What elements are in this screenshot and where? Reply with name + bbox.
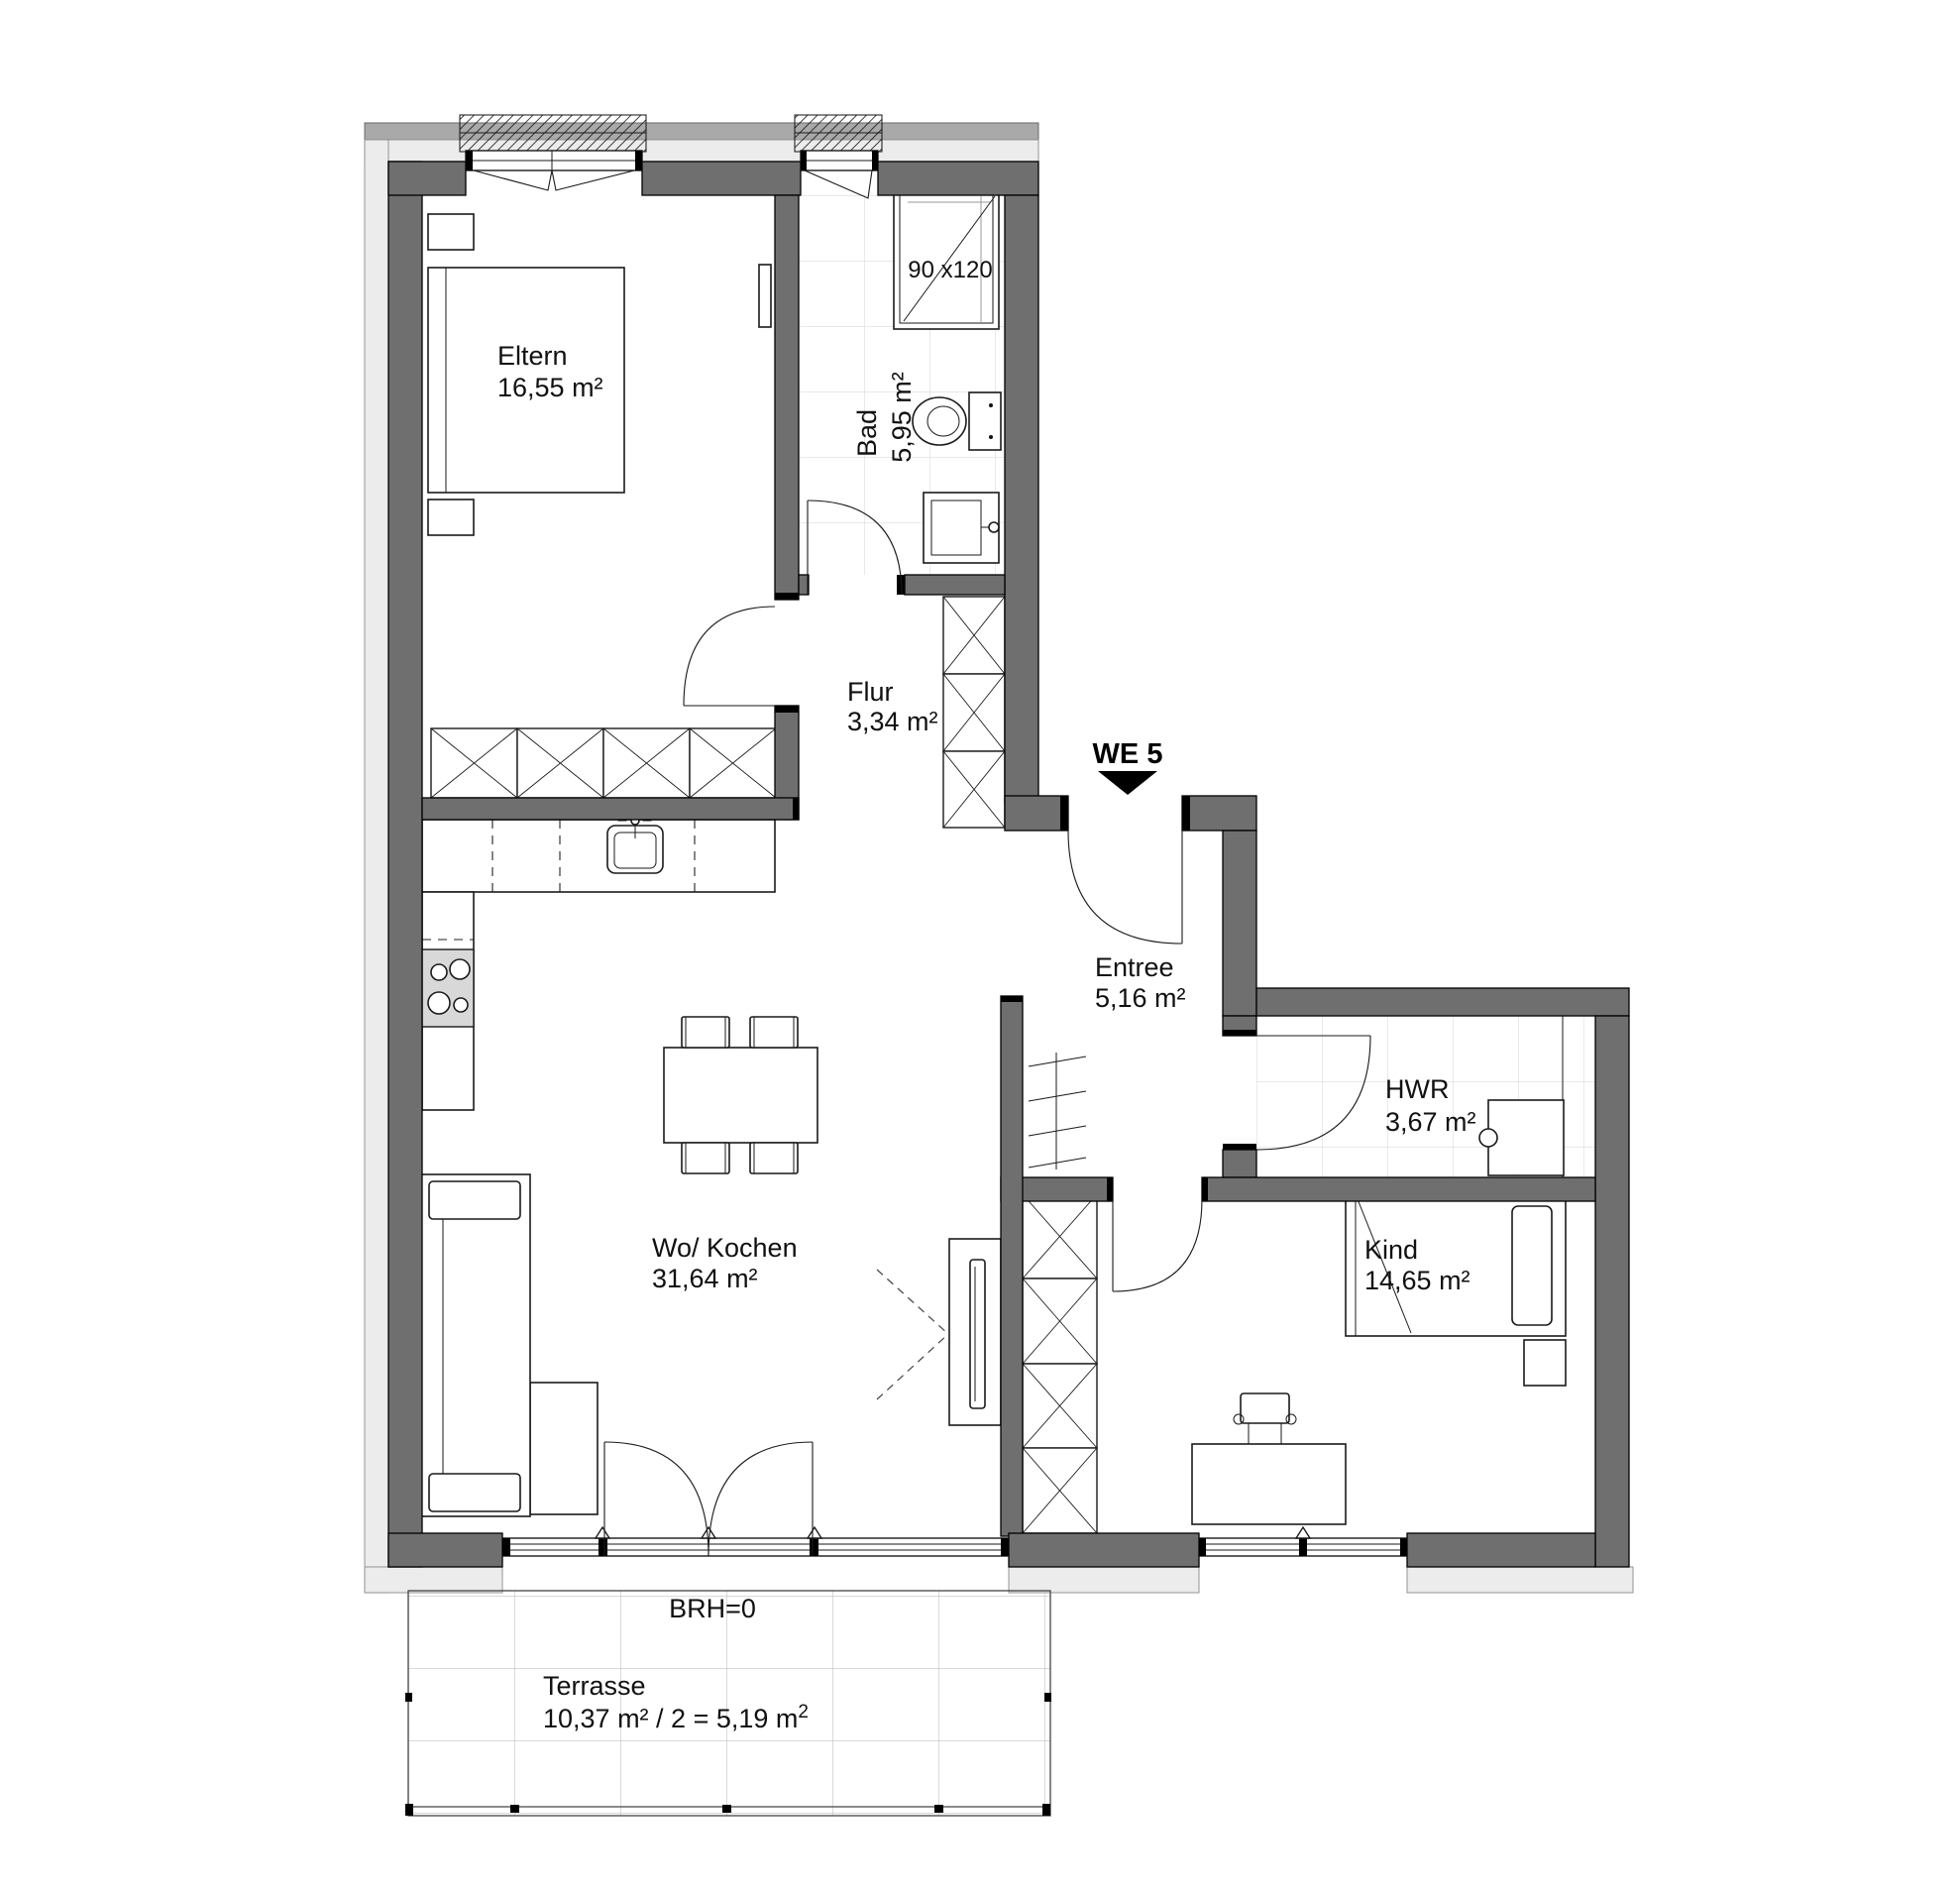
nightstand-bottom (428, 500, 474, 535)
apartment-entry-door-swing (1068, 831, 1182, 944)
wohnen-area: 31,64 m² (652, 1264, 758, 1293)
kind-door-swing (1113, 1199, 1202, 1291)
sofa (419, 1174, 598, 1516)
tv-sideboard (877, 1239, 1001, 1425)
desk (1192, 1444, 1346, 1524)
coat-rack (1029, 1053, 1086, 1169)
kind-area: 14,65 m² (1364, 1266, 1470, 1295)
bad-label: Bad (852, 409, 882, 457)
wohnen-label: Wo/ Kochen (652, 1233, 798, 1263)
floorplan-canvas: Eltern 16,55 m² Bad 5,95 m² Flur 3,34 m²… (0, 0, 1960, 1891)
dining-table (664, 1048, 817, 1143)
cooktop (422, 949, 474, 1027)
bad-window (795, 115, 882, 198)
tiled-floors (799, 195, 1595, 1177)
flur-wardrobe (943, 597, 1005, 828)
bad-area: 5,95 m² (887, 372, 917, 463)
terrasse-area: 10,37 m² / 2 = 5,19 m2 (543, 1702, 809, 1733)
eltern-wardrobe (431, 728, 776, 798)
terrasse-label: Terrasse (543, 1671, 646, 1701)
hwr-label: HWR (1385, 1074, 1449, 1104)
entree-area: 5,16 m² (1095, 983, 1186, 1013)
eltern-window (460, 115, 646, 190)
eltern-door-swing (684, 607, 775, 706)
eltern-label: Eltern (497, 341, 568, 371)
flur-area: 3,34 m² (847, 707, 938, 736)
sill-height-label: BRH=0 (669, 1594, 756, 1623)
kind-nightstand (1524, 1340, 1566, 1386)
radiator (759, 265, 771, 327)
entrance-marker: WE 5 (1093, 738, 1163, 795)
entree-label: Entree (1095, 952, 1174, 982)
flur-label: Flur (847, 677, 894, 707)
eltern-area: 16,55 m² (497, 373, 603, 402)
unit-label: WE 5 (1093, 738, 1163, 770)
entree-wardrobe (1023, 1194, 1097, 1533)
nightstand-top (428, 214, 474, 250)
desk-chair (1234, 1393, 1296, 1444)
entrance-arrow-icon (1098, 771, 1157, 795)
kind-window (1199, 1527, 1407, 1556)
shower-size-label: 90 x120 (908, 257, 992, 283)
washbasin (924, 493, 999, 563)
kind-label: Kind (1364, 1235, 1418, 1265)
hwr-area: 3,67 m² (1385, 1107, 1476, 1137)
living-room-window-band (502, 1527, 1009, 1556)
